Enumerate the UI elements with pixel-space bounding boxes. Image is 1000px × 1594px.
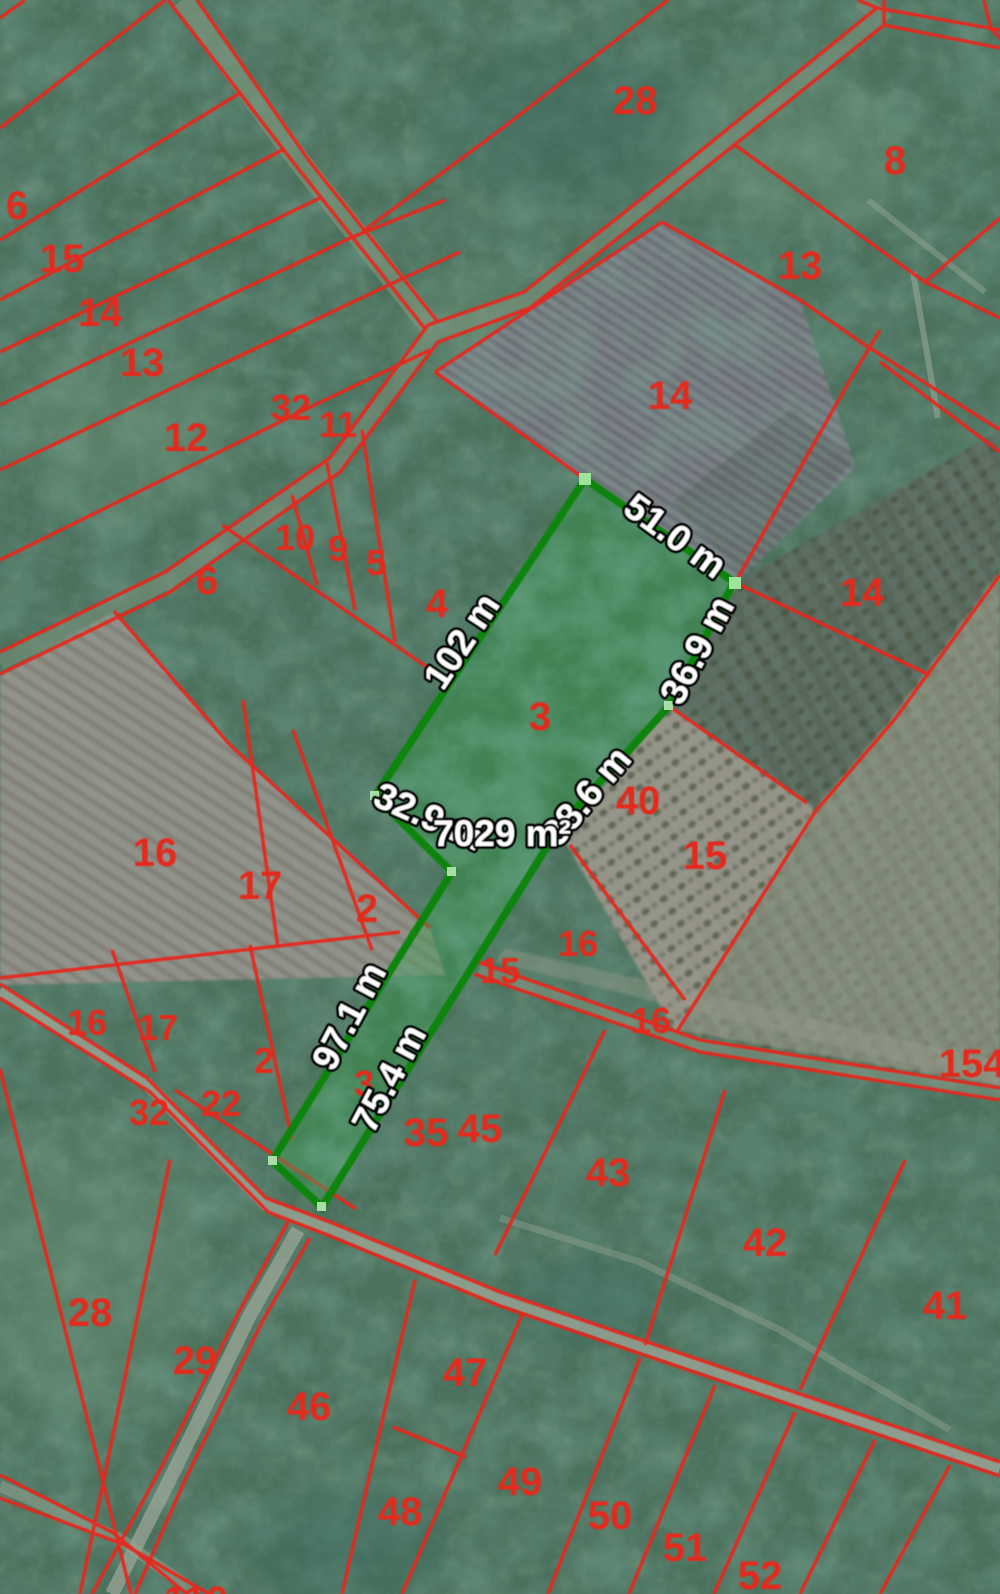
svg-text:2: 2	[356, 887, 378, 931]
svg-text:14: 14	[840, 571, 885, 615]
svg-text:32: 32	[129, 1092, 169, 1133]
svg-text:32: 32	[271, 387, 311, 428]
svg-text:11: 11	[319, 404, 357, 445]
svg-text:42: 42	[743, 1221, 788, 1265]
svg-text:51: 51	[663, 1526, 708, 1570]
svg-text:41: 41	[923, 1284, 968, 1328]
svg-text:14: 14	[648, 374, 693, 418]
svg-text:10: 10	[275, 517, 315, 558]
svg-text:16: 16	[631, 1000, 671, 1041]
svg-text:8: 8	[884, 139, 906, 183]
svg-text:45: 45	[458, 1107, 503, 1151]
svg-text:154: 154	[939, 1042, 1000, 1086]
svg-text:47: 47	[443, 1351, 488, 1395]
svg-text:16: 16	[558, 923, 598, 964]
svg-text:13: 13	[778, 244, 823, 288]
svg-text:35: 35	[404, 1111, 449, 1155]
svg-text:17: 17	[138, 1007, 178, 1048]
svg-text:29: 29	[173, 1339, 218, 1383]
svg-text:28: 28	[68, 1291, 113, 1335]
svg-text:3: 3	[529, 695, 551, 739]
svg-text:6: 6	[6, 184, 28, 228]
svg-text:46: 46	[287, 1385, 332, 1429]
svg-text:48: 48	[378, 1490, 423, 1534]
svg-text:28: 28	[613, 79, 658, 123]
svg-text:110: 110	[164, 1579, 229, 1594]
svg-text:4: 4	[426, 582, 449, 626]
svg-text:22: 22	[201, 1083, 241, 1124]
svg-text:13: 13	[120, 341, 165, 385]
svg-text:52: 52	[738, 1554, 783, 1594]
svg-text:49: 49	[498, 1460, 543, 1504]
svg-text:5: 5	[366, 542, 386, 583]
svg-text:15: 15	[683, 834, 728, 878]
svg-text:6: 6	[196, 559, 218, 603]
svg-text:9: 9	[328, 528, 348, 569]
svg-text:2: 2	[254, 1040, 274, 1081]
svg-text:15: 15	[40, 237, 85, 281]
svg-text:7029 m²: 7029 m²	[433, 813, 571, 854]
svg-text:50: 50	[588, 1494, 633, 1538]
svg-text:16: 16	[67, 1002, 107, 1043]
svg-text:15: 15	[480, 950, 520, 991]
svg-text:43: 43	[586, 1151, 631, 1195]
svg-text:16: 16	[133, 831, 178, 875]
svg-text:14: 14	[78, 291, 123, 335]
svg-text:40: 40	[616, 779, 661, 823]
svg-text:17: 17	[238, 864, 283, 908]
svg-text:12: 12	[164, 416, 209, 460]
